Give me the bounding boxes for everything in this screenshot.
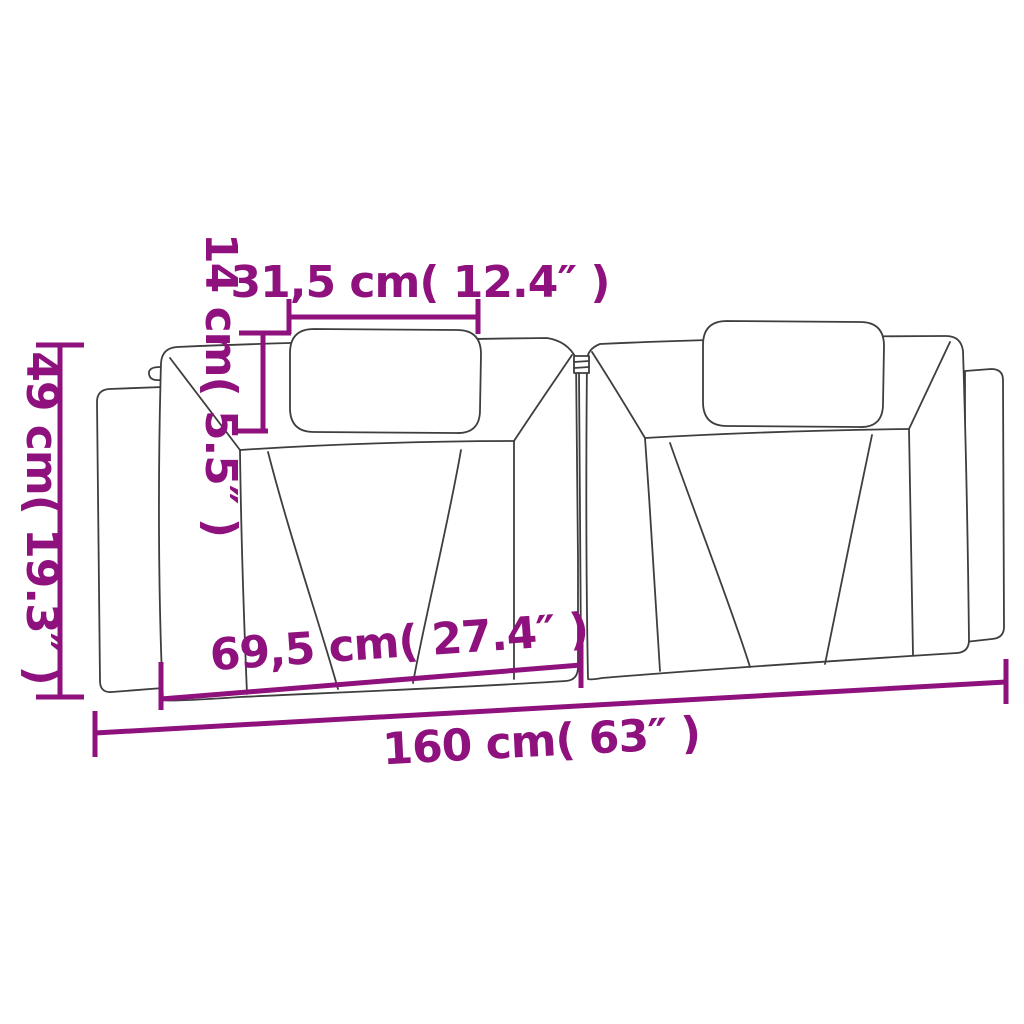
product-dimension-diagram: 31,5 cm( 12.4″ ) 14 cm( 5.5″ ) 49 cm( 19… (0, 0, 1024, 1024)
right-side-panel (965, 369, 1004, 642)
dimension-cushion-height: 49 cm( 19.3″ ) (16, 345, 84, 697)
left-edge-tab (149, 367, 160, 380)
total-width-label: 160 cm( 63″ ) (381, 708, 701, 776)
left-pillow (290, 329, 481, 433)
cushion-height-label: 49 cm( 19.3″ ) (16, 351, 67, 685)
right-pillow (703, 321, 884, 427)
pillow-height-label: 14 cm( 5.5″ ) (195, 233, 246, 537)
connector-hatch-2 (574, 367, 589, 368)
connector-block (574, 356, 589, 373)
diagram-canvas: 31,5 cm( 12.4″ ) 14 cm( 5.5″ ) 49 cm( 19… (0, 0, 1024, 1024)
connector-hatch-1 (574, 361, 589, 362)
dimension-pillow-width: 31,5 cm( 12.4″ ) (231, 257, 610, 334)
pillow-width-label: 31,5 cm( 12.4″ ) (231, 257, 610, 308)
left-side-panel (97, 387, 163, 692)
